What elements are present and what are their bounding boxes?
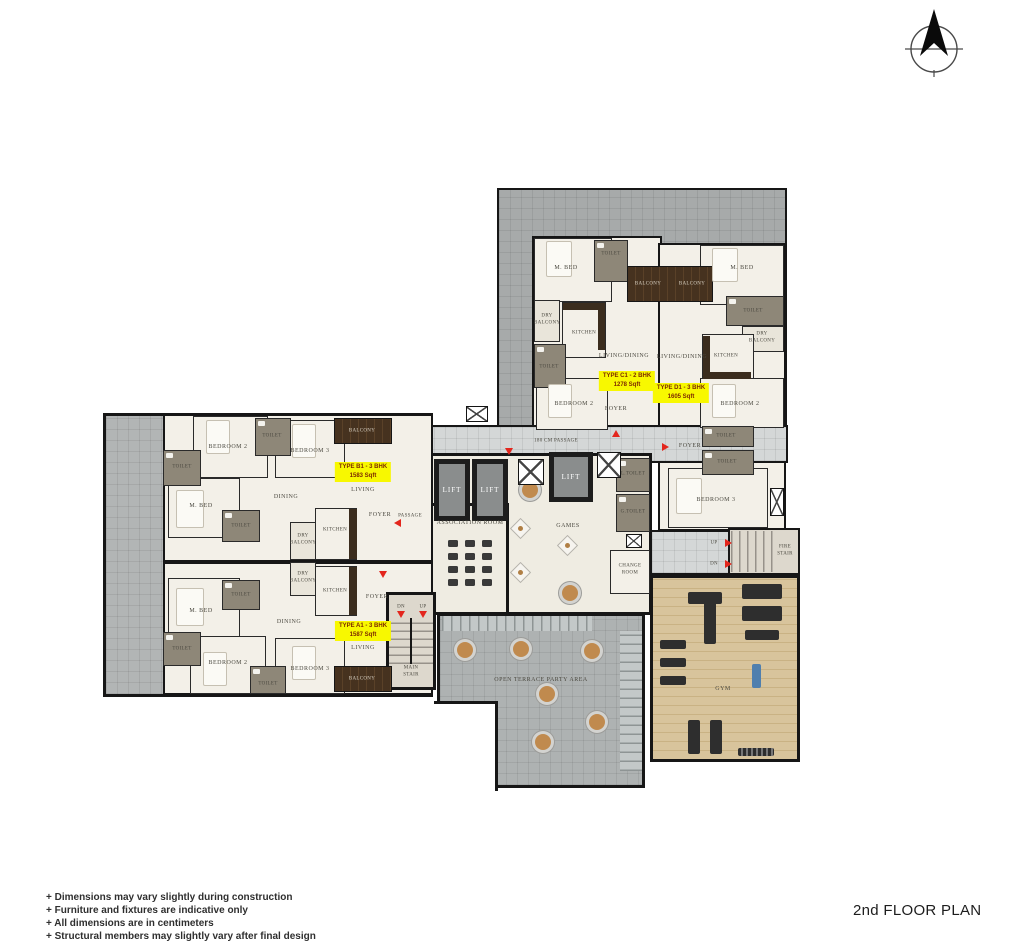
chair [465,579,475,586]
label-dry-balcony: DRY BALCONY [747,331,777,345]
label-up: UP [711,541,718,546]
label-bedroom2: BEDROOM 2 [208,660,247,666]
label-toilet: TOILET [601,252,620,257]
chair [482,566,492,573]
label-dn: DN [710,562,718,567]
duct-shaft-icon [626,534,642,548]
bed [676,478,702,514]
label-games: GAMES [556,523,580,529]
gym-bench [745,630,779,640]
label-bedroom2: BEDROOM 2 [554,401,593,407]
label-change-room: CHANGE ROOM [614,563,646,577]
chair [482,579,492,586]
lift-label: LIFT [443,486,462,494]
label-dining: DINING [277,619,301,625]
terrace-table [457,642,473,658]
kitchen-counter [598,310,605,350]
badge-a1-type: TYPE A1 - 3 BHK [339,622,387,631]
label-dining: DINING [274,494,298,500]
gym-rack [704,600,716,644]
label-balcony: BALCONY [349,429,375,434]
label-kitchen: KITCHEN [323,528,347,533]
label-living-dining: LIVING/DINING [657,354,707,360]
label-balcony: BALCONY [349,677,375,682]
label-foyer: FOYER [605,406,627,412]
stair-flight-up [412,618,433,664]
lift-1: LIFT [434,459,470,521]
disclaimer-notes: + Dimensions may vary slightly during co… [46,891,316,943]
label-dry-balcony: DRY BALCONY [289,571,317,585]
chair [448,540,458,547]
label-living: LIVING [351,645,375,651]
duct-shaft-icon [518,459,544,485]
gym-machine [688,720,700,754]
gym-bench [660,658,686,667]
terrace-table [584,643,600,659]
label-bedroom3: BEDROOM 3 [290,666,329,672]
gym-bench [660,640,686,649]
label-mbed: M. BED [730,265,753,271]
label-bedroom2: BEDROOM 2 [208,444,247,450]
chair [482,540,492,547]
label-dn: DN [397,605,405,610]
label-passage: PASSAGE [398,514,422,519]
label-living-dining: LIVING/DINING [599,353,649,359]
gym-bench [660,676,686,685]
terrace-steps-right [620,631,642,771]
label-toilet: TOILET [743,309,762,314]
label-toilet: TOILET [231,524,250,529]
duct-shaft-icon [597,452,621,478]
label-toilet: TOILET [717,460,736,465]
lift-label: LIFT [481,486,500,494]
direction-arrow-left [394,519,401,527]
terrace-cutout [434,701,498,791]
direction-arrow-down [419,611,427,618]
chair [465,540,475,547]
label-kitchen: KITCHEN [572,331,596,336]
direction-arrow-down [397,611,405,618]
bed [546,241,572,277]
kitchen-counter [703,372,751,379]
label-bedroom3: BEDROOM 3 [696,497,735,503]
gym [650,575,800,762]
note-line: + Structural members may slightly vary a… [46,930,316,943]
label-toilet: TOILET [262,434,281,439]
label-kitchen: KITCHEN [323,589,347,594]
gym-mat [738,748,774,756]
window-shaft-icon [466,406,488,422]
label-bedroom2: BEDROOM 2 [720,401,759,407]
bed [292,646,316,680]
window-shaft-icon [770,488,784,516]
direction-arrow-right [725,539,732,547]
treadmill [742,606,782,621]
kitchen-counter [349,567,357,615]
badge-c1-area: 1278 Sqft [603,381,651,390]
badge-a1-area: 1587 Sqft [339,631,387,640]
lift-label: LIFT [562,473,581,481]
label-toilet: TOILET [258,682,277,687]
direction-arrow-right [725,560,732,568]
terrace-table [535,734,551,750]
label-toilet: TOILET [716,434,735,439]
gym-machine [710,720,722,754]
label-dry-balcony: DRY BALCONY [289,533,317,547]
label-fire-stair: FIRE STAIR [772,544,798,558]
chair [482,553,492,560]
label-foyer: FOYER [679,443,701,449]
label-association: ASSOCIATION ROOM [437,520,504,526]
label-mbed: M. BED [189,503,212,509]
terrace-table [589,714,605,730]
north-arrow-icon [903,8,965,78]
label-balcony: BALCONY [635,282,661,287]
terrace-table [539,686,555,702]
badge-b1-type: TYPE B1 - 3 BHK [339,463,387,472]
gym-passage [650,530,734,575]
label-l-toilet: L.TOILET [621,472,645,477]
lift-3: LIFT [549,452,593,502]
label-toilet: TOILET [539,365,558,370]
bed [176,490,204,528]
note-line: + Dimensions may vary slightly during co… [46,891,316,904]
label-toilet: TOILET [231,593,250,598]
badge-d1-type: TYPE D1 - 3 BHK [657,384,705,393]
terrace-steps-top [442,616,592,631]
stair-divider [410,618,412,664]
badge-b1-area: 1583 Sqft [339,472,387,481]
treadmill [742,584,782,599]
direction-arrow-up [612,430,620,437]
badge-unit-a1: TYPE A1 - 3 BHK 1587 Sqft [335,621,391,641]
badge-unit-c1: TYPE C1 - 2 BHK 1278 Sqft [599,371,655,391]
label-toilet: TOILET [172,647,191,652]
label-foyer: FOYER [369,512,391,518]
label-foyer: FOYER [366,594,388,600]
floor-plan-page: { "meta": { "title": "2nd FLOOR PLAN" },… [0,0,1024,945]
label-open-terrace: OPEN TERRACE PARTY AREA [494,677,587,683]
label-dry-balcony: DRY BALCONY [534,313,560,327]
kitchen-counter [563,303,605,310]
room-a1-toilet-small [250,666,286,694]
label-up: UP [420,605,427,610]
direction-arrow-right [662,443,669,451]
direction-arrow-down [379,571,387,578]
fire-stair-flight [731,531,773,572]
badge-unit-d1: TYPE D1 - 3 BHK 1605 Sqft [653,383,709,403]
gym-machine [752,664,761,688]
room-c1-toilet-top [594,240,628,282]
note-line: + All dimensions are in centimeters [46,917,316,930]
label-main-stair: MAIN STAIR [396,665,426,679]
label-balcony: BALCONY [679,282,705,287]
plan-title: 2nd FLOOR PLAN [853,902,981,919]
games-table [562,585,578,601]
label-gym: GYM [715,686,731,692]
lift-2: LIFT [472,459,508,521]
stair-flight-dn [389,618,410,664]
terrace-table [513,641,529,657]
label-living: LIVING [351,487,375,493]
label-main-passage: 180 CM PASSAGE [534,439,578,444]
direction-arrow-down [505,448,513,455]
chair [448,579,458,586]
bed [203,652,227,686]
kitchen-counter [349,509,357,559]
bed [176,588,204,626]
label-mbed: M. BED [189,608,212,614]
label-toilet: TOILET [172,465,191,470]
label-g-toilet: G.TOILET [621,510,646,515]
chair [448,566,458,573]
chair [465,566,475,573]
badge-d1-area: 1605 Sqft [657,393,705,402]
label-mbed: M. BED [554,265,577,271]
label-kitchen: KITCHEN [714,354,738,359]
badge-unit-b1: TYPE B1 - 3 BHK 1583 Sqft [335,462,391,482]
badge-c1-type: TYPE C1 - 2 BHK [603,372,651,381]
label-bedroom3: BEDROOM 3 [290,448,329,454]
note-line: + Furniture and fixtures are indicative … [46,904,316,917]
chair [465,553,475,560]
chair [448,553,458,560]
